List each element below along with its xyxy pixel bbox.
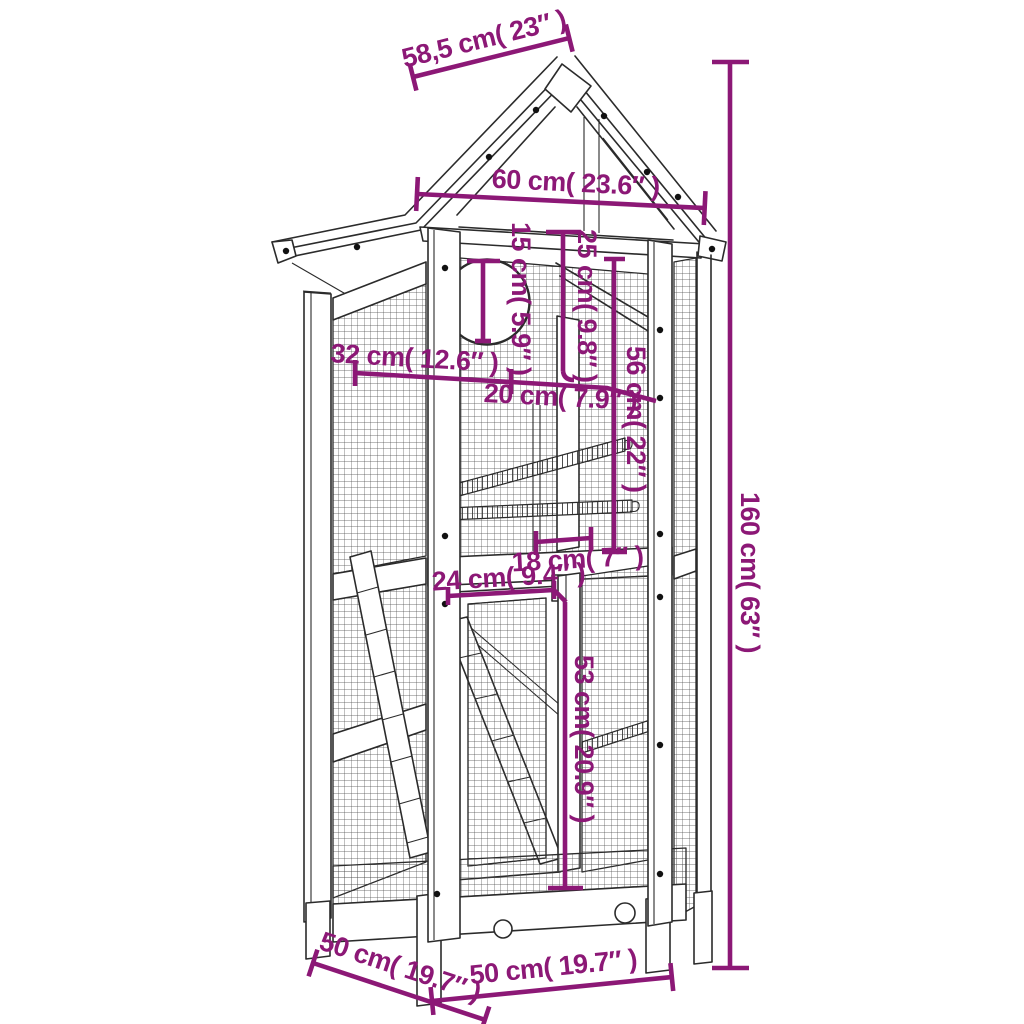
dim-roof-slope: 58,5 cm( 23″ ) bbox=[399, 4, 574, 92]
dim-entry-hole-label: 15 cm( 5.9″ ) bbox=[506, 222, 536, 376]
dim-door-width: 24 cm( 9.4″ ) bbox=[431, 557, 586, 605]
back-right-leg bbox=[694, 891, 712, 964]
dim-total-height-label: 160 cm( 63″ ) bbox=[735, 492, 765, 653]
dim-inner-height-label: 25 cm( 9.8″ ) bbox=[572, 229, 602, 383]
dim-upper-height-label: 56 cm( 22″ ) bbox=[621, 346, 651, 493]
dim-roof-width-label: 60 cm( 23.6″ ) bbox=[491, 164, 660, 202]
front-lower-section bbox=[445, 566, 657, 880]
right-side-panel bbox=[674, 252, 711, 918]
diagram-canvas: 58,5 cm( 23″ ) 60 cm( 23.6″ ) 15 cm( 5.9… bbox=[0, 0, 1024, 1024]
dim-roof-slope-label: 58,5 cm( 23″ ) bbox=[399, 4, 569, 74]
aviary-dimension-diagram: 58,5 cm( 23″ ) 60 cm( 23.6″ ) 15 cm( 5.9… bbox=[0, 0, 1024, 1024]
dim-lower-height-label: 53 cm( 20.9″ ) bbox=[569, 655, 599, 823]
feeder-knob-left bbox=[494, 920, 512, 938]
dim-total-height: 160 cm( 63″ ) bbox=[712, 62, 765, 968]
front-right-post bbox=[648, 240, 672, 926]
feeder-knob-right bbox=[615, 903, 635, 923]
back-left-post bbox=[304, 292, 331, 922]
